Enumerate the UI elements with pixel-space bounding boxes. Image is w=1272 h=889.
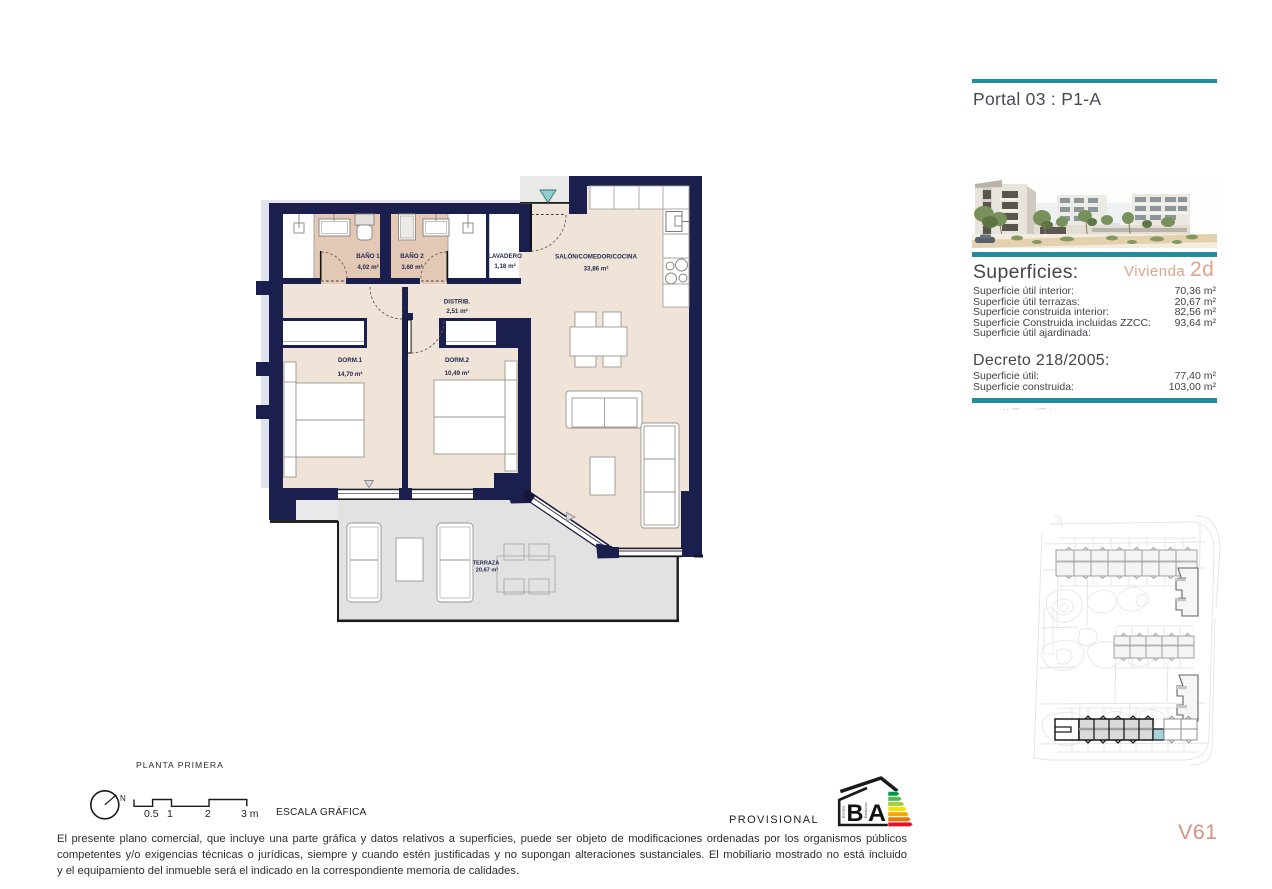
svg-text:14,70 m²: 14,70 m² — [338, 371, 363, 378]
svg-text:1,18 m²: 1,18 m² — [494, 263, 515, 270]
svg-text:B: B — [847, 800, 864, 827]
svg-text:SALÓN/COMEDOR/COCINA: SALÓN/COMEDOR/COCINA — [555, 253, 637, 261]
svg-text:4,02 m²: 4,02 m² — [357, 264, 378, 271]
svg-text:DORM.1: DORM.1 — [338, 357, 363, 364]
svg-text:2,51 m²: 2,51 m² — [446, 308, 467, 315]
svg-text:10,49 m²: 10,49 m² — [445, 370, 470, 377]
svg-text:A: A — [868, 800, 886, 827]
svg-text:TERRAZA: TERRAZA — [473, 561, 500, 567]
svg-text:DORM.2: DORM.2 — [445, 357, 470, 364]
svg-text:Emisiones: Emisiones — [864, 802, 868, 818]
svg-text:33,86 m²: 33,86 m² — [584, 266, 609, 273]
svg-text:Energía: Energía — [842, 806, 846, 818]
svg-text:20,67 m²: 20,67 m² — [476, 567, 499, 574]
svg-text:3,60 m²: 3,60 m² — [401, 264, 422, 271]
svg-text:BAÑO 2: BAÑO 2 — [400, 253, 424, 260]
svg-text:BAÑO 1: BAÑO 1 — [356, 253, 380, 260]
svg-text:LAVADERO: LAVADERO — [488, 253, 522, 260]
svg-text:DISTRIB.: DISTRIB. — [444, 299, 471, 306]
